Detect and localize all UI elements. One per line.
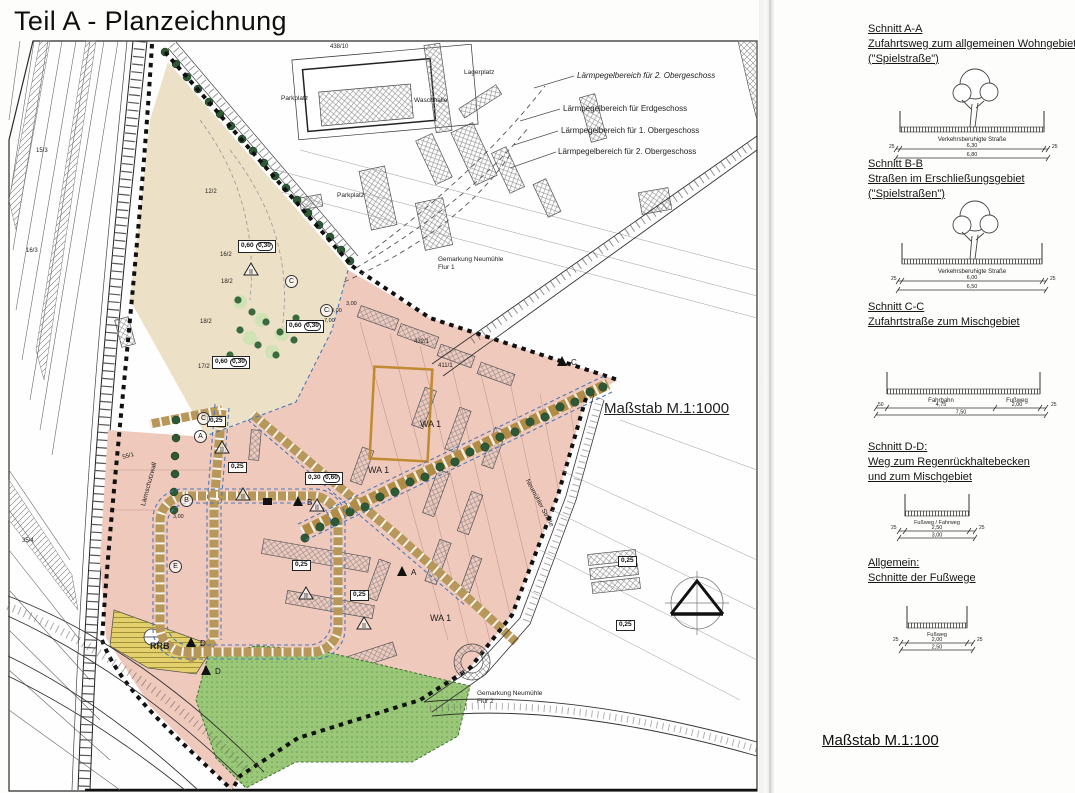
section-diagram-allgemein: Fußweg 25 25 2,00 2,50 xyxy=(835,588,1035,654)
dim-side-right: 25 xyxy=(979,525,985,531)
tree-icon xyxy=(953,69,998,127)
dim-side-right: 25 xyxy=(1050,276,1056,282)
dim-total: 3,00 xyxy=(932,533,943,539)
dim-side-right: 25 xyxy=(977,637,983,643)
section-heading-allgemein: Allgemein: Schnitte der Fußwege xyxy=(868,556,976,586)
dim-inner: 6,30 xyxy=(967,143,978,149)
dim-inner: 2,00 xyxy=(932,637,943,643)
section-diagram-bb: Verkehrsberuhigte Straße 25 25 6,00 6,50 xyxy=(870,196,1070,296)
dim-side-right: 25 xyxy=(1052,144,1058,150)
m-marker xyxy=(263,498,272,505)
dim-side-left: 25 xyxy=(891,525,897,531)
dim-inner: 6,00 xyxy=(967,275,978,281)
section-heading-schnitt-cc: Schnitt C-C Zufahrtstraße zum Mischgebie… xyxy=(868,300,1020,330)
section-heading-schnitt-aa: Schnitt A-A Zufahrtsweg zum allgemeinen … xyxy=(868,22,1075,67)
dim-side-left: 25 xyxy=(889,144,895,150)
dim-walk: 2,00 xyxy=(1012,402,1023,408)
section-diagram-aa: Verkehrsberuhigte Straße 25 25 6,30 6,80 xyxy=(870,64,1070,164)
section-diagram-cc: Fahrbahn Fußweg 50 4,75 2,00 25 7,50 xyxy=(865,336,1065,418)
dim-side-left: 50 xyxy=(878,402,884,408)
sections-scale-label: Maßstab M.1:100 xyxy=(822,732,939,749)
dim-total: 2,50 xyxy=(932,645,943,651)
dim-lane: 4,75 xyxy=(936,402,947,408)
dim-total: 6,50 xyxy=(967,284,978,290)
section-diagram-dd: Fußweg / Fahrweg 25 25 2,50 3,00 xyxy=(835,476,1035,542)
dim-inner: 2,50 xyxy=(932,525,943,531)
section-heading-schnitt-bb: Schnitt B-B Straßen im Erschließungsgebi… xyxy=(868,157,1025,202)
tree-icon xyxy=(953,201,998,259)
dim-side-left: 25 xyxy=(891,276,897,282)
dim-side-left: 25 xyxy=(893,637,899,643)
dim-total: 7,50 xyxy=(956,410,967,416)
dim-side-right: 25 xyxy=(1051,402,1057,408)
